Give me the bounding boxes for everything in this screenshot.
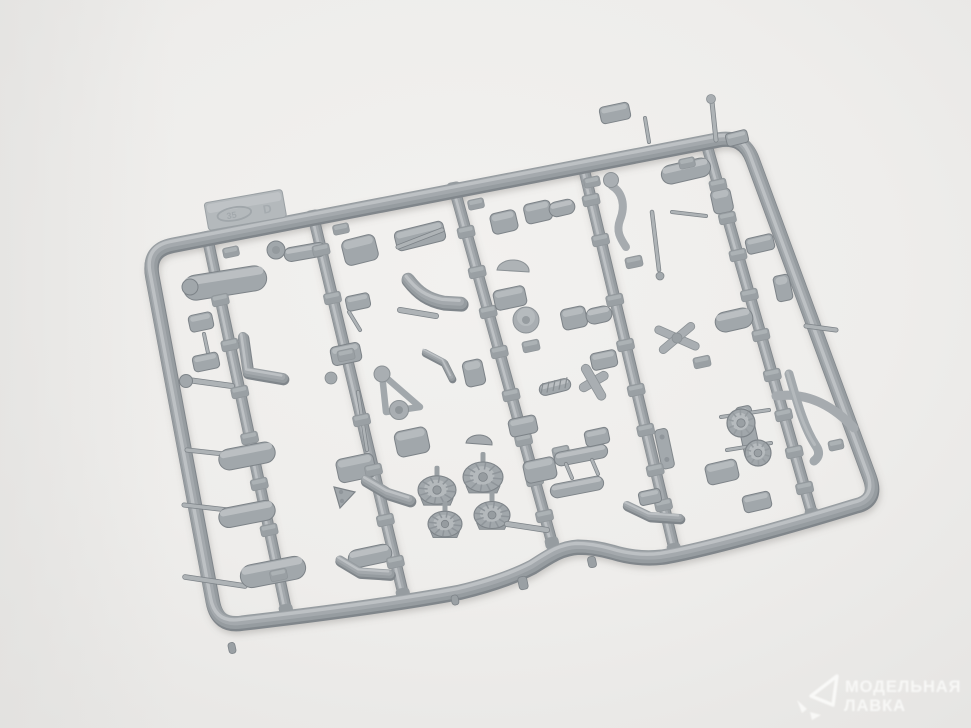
svg-text:35: 35 [226,210,238,222]
svg-text:ЛАВКА: ЛАВКА [844,697,906,715]
svg-text:МОДЕЛЬНАЯ: МОДЕЛЬНАЯ [845,678,961,696]
